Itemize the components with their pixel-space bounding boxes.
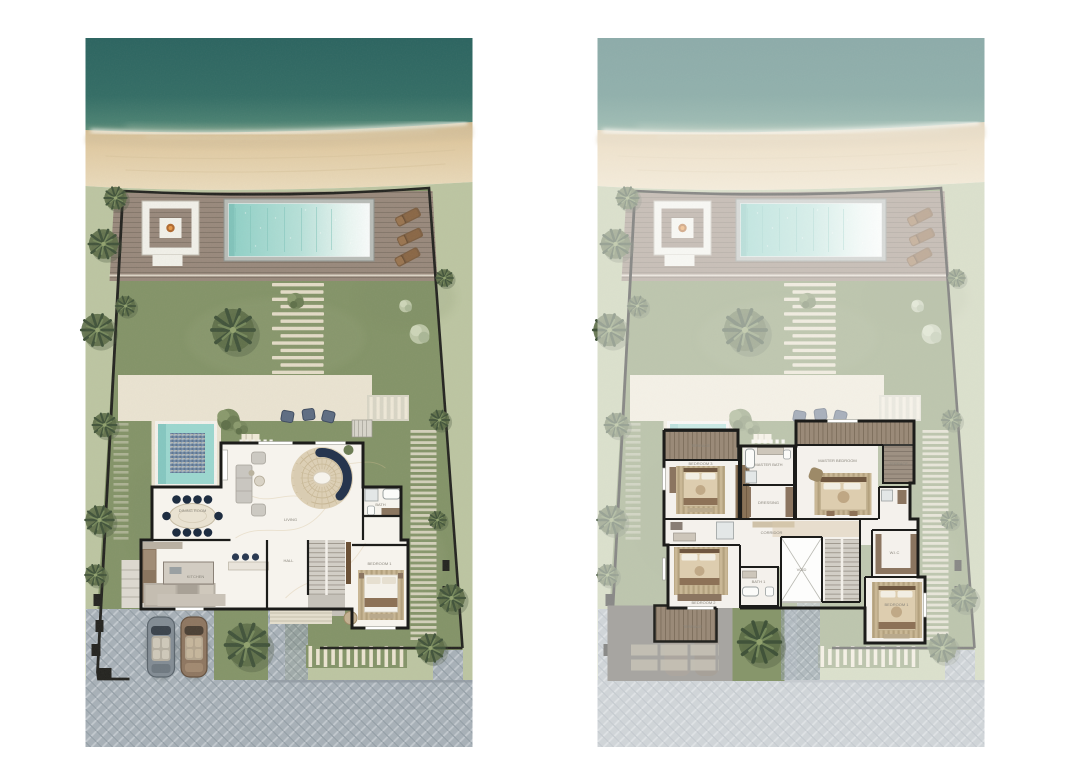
svg-text:W.I.C: W.I.C [890, 550, 900, 555]
svg-text:DINING ROOM: DINING ROOM [179, 508, 207, 513]
svg-text:BATH: BATH [375, 502, 385, 507]
svg-text:BEDROOM 2: BEDROOM 2 [691, 600, 716, 605]
svg-text:BEDROOM 3: BEDROOM 3 [688, 461, 713, 466]
svg-text:HALL: HALL [283, 558, 294, 563]
svg-text:LIVING: LIVING [284, 517, 297, 522]
svg-text:VOID: VOID [797, 567, 807, 572]
svg-text:KITCHEN: KITCHEN [187, 574, 205, 579]
svg-text:TERRACE: TERRACE [683, 624, 702, 629]
svg-text:TERRACE: TERRACE [691, 443, 710, 448]
svg-text:BATH 1: BATH 1 [752, 579, 766, 584]
svg-text:CORRIDOR: CORRIDOR [761, 530, 783, 535]
svg-text:BEDROOM 1: BEDROOM 1 [367, 561, 392, 566]
svg-text:MASTER BEDROOM: MASTER BEDROOM [818, 458, 856, 463]
svg-text:DRESSING: DRESSING [758, 500, 779, 505]
svg-text:BEDROOM 1: BEDROOM 1 [884, 602, 909, 607]
svg-text:TERRACE: TERRACE [889, 461, 908, 466]
svg-text:MASTER BATH: MASTER BATH [754, 462, 782, 467]
